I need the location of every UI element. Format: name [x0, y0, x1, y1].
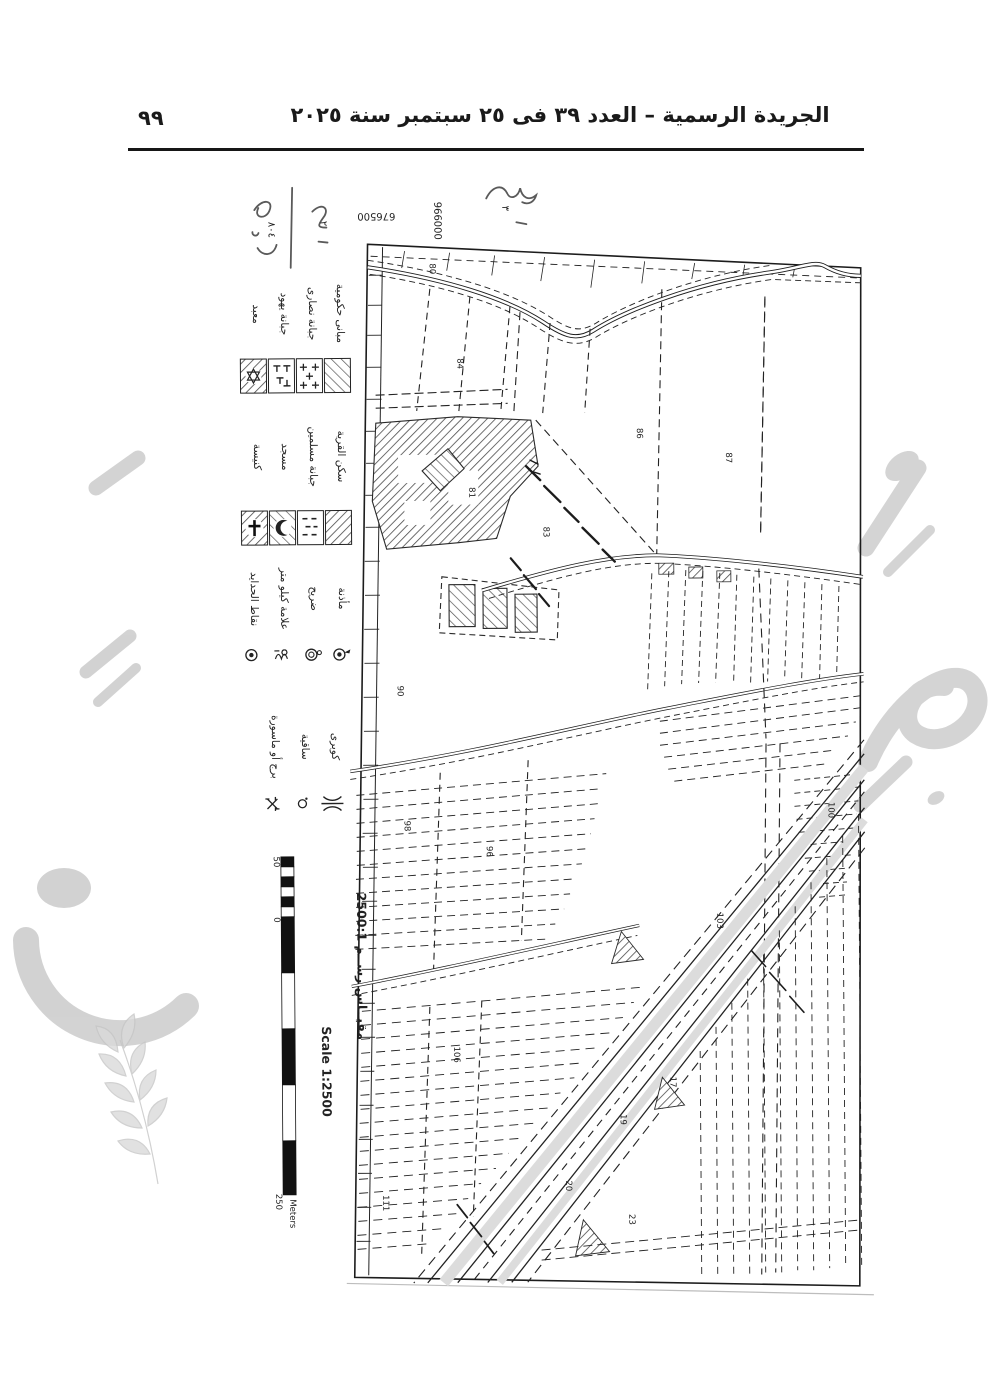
parcel-number: 96	[484, 846, 494, 857]
legend-label-waterwheel: ساقية	[299, 734, 311, 760]
scale-bar-label-50: 50	[271, 856, 281, 867]
parcel-number: 81	[466, 487, 476, 498]
parcel-number: 87	[723, 452, 733, 463]
jewish-cemetery-symbol-icon	[268, 359, 294, 393]
page-number: ٩٩	[138, 106, 164, 130]
iron-points-symbol-icon	[246, 650, 257, 661]
parcel-number: 86	[634, 428, 644, 439]
village-housing-symbol-icon	[325, 510, 351, 544]
handwritten-annotations	[252, 186, 537, 268]
parcel-number: 83	[541, 527, 551, 538]
map-parcels	[347, 244, 868, 1284]
legend-label-government-buildings: مبانى حكومية	[334, 284, 346, 343]
parcel-number: 80	[427, 263, 437, 274]
scale-bar-label-0: 0	[271, 917, 281, 922]
legend-label-minaret: مأذنة	[336, 587, 350, 609]
legend-label-bridge: كوبرى	[329, 733, 341, 760]
parcel-number: 20	[563, 1180, 573, 1191]
shrine-symbol-icon	[306, 649, 322, 660]
legend-label-christian-cemetery: جبانة نصارى	[306, 287, 318, 340]
parcel-number: 106	[451, 1047, 461, 1063]
muslim-cemetery-symbol-icon	[297, 511, 323, 545]
road-middle	[350, 674, 865, 780]
parcel-number: 23	[626, 1214, 636, 1225]
handwritten-value-3: ٣	[499, 206, 510, 212]
parcel-number: 100	[825, 802, 835, 818]
legend: معبد جبانة يهود جبانة نصارى مبانى حكومية	[240, 284, 354, 811]
cadastral-map-scan: ٨٠٤ ٢ ٣ 966000 676500 معبد جبانة يهود جب…	[224, 168, 882, 1313]
header-rule	[128, 148, 864, 151]
road-lower-left	[351, 925, 639, 995]
church-symbol-icon	[241, 511, 267, 545]
watermark-laurel-branch	[96, 1014, 167, 1184]
handwritten-value-2: ٢	[317, 221, 328, 226]
legend-label-muslim-cemetery: جبانة مسلمين	[307, 426, 319, 487]
legend-label-shrine: ضريح	[308, 586, 320, 611]
minaret-symbol-icon	[334, 649, 351, 660]
kilometer-mark-symbol-icon	[274, 650, 287, 659]
legend-label-jewish-cemetery: جبانة يهود	[278, 293, 290, 336]
legend-label-tower-or-pipe: برج أو ماسورة	[269, 715, 283, 779]
gazette-header-title: الجريدة الرسمية – العدد ٣٩ فى ٢٥ سبتمبر …	[250, 103, 870, 127]
parcel-number: 90	[395, 686, 405, 697]
scale-bar-label-meters: Meters	[287, 1199, 297, 1229]
parcel-number: 19	[618, 1114, 628, 1125]
legend-label-temple: معبد	[250, 304, 262, 323]
scale-ratio-arabic: مقيــاس رســم 2500:1	[354, 893, 370, 1040]
christian-cemetery-symbol-icon	[296, 359, 322, 393]
watermark-left-stamp	[0, 440, 230, 1230]
grid-coordinate-northing: 966000	[431, 202, 442, 240]
parcel-number: 84	[454, 358, 464, 369]
diagonal-road-band	[410, 740, 868, 1283]
parcel-number: 111	[380, 1195, 390, 1211]
bridge-symbol-icon	[321, 796, 343, 810]
parcel-number: 103	[714, 913, 724, 929]
legend-label-iron-points: نقاط الحدايد	[248, 572, 260, 626]
place-label-strokes	[452, 458, 806, 1253]
government-buildings-symbol-icon	[324, 358, 350, 392]
village-area-1	[372, 416, 539, 549]
map-frame	[340, 241, 874, 1299]
road-top-curve	[368, 257, 862, 345]
gazette-page: ٩٩ الجريدة الرسمية – العدد ٣٩ فى ٢٥ سبتم…	[0, 0, 991, 1400]
scale-ratio-english: Scale 1:2500	[319, 1026, 335, 1117]
grid-coordinate-easting: 676500	[357, 210, 395, 221]
tower-or-pipe-symbol-icon	[265, 797, 279, 811]
parcel-number: 98	[402, 821, 412, 832]
legend-label-mosque: مسجد	[279, 443, 291, 470]
legend-label-church: كنيسة	[251, 444, 263, 470]
waterwheel-symbol-icon	[298, 798, 307, 808]
legend-label-kilometer-mark: علامة كيلو متر	[278, 567, 290, 630]
parcel-number: 17	[667, 1077, 677, 1088]
handwritten-value-1: ٨٠٤	[265, 222, 276, 238]
temple-symbol-icon	[240, 359, 266, 393]
legend-label-village-housing: سكن القرية	[335, 431, 347, 483]
mosque-symbol-icon	[269, 511, 295, 545]
scale-bar-label-250: 250	[273, 1194, 283, 1210]
